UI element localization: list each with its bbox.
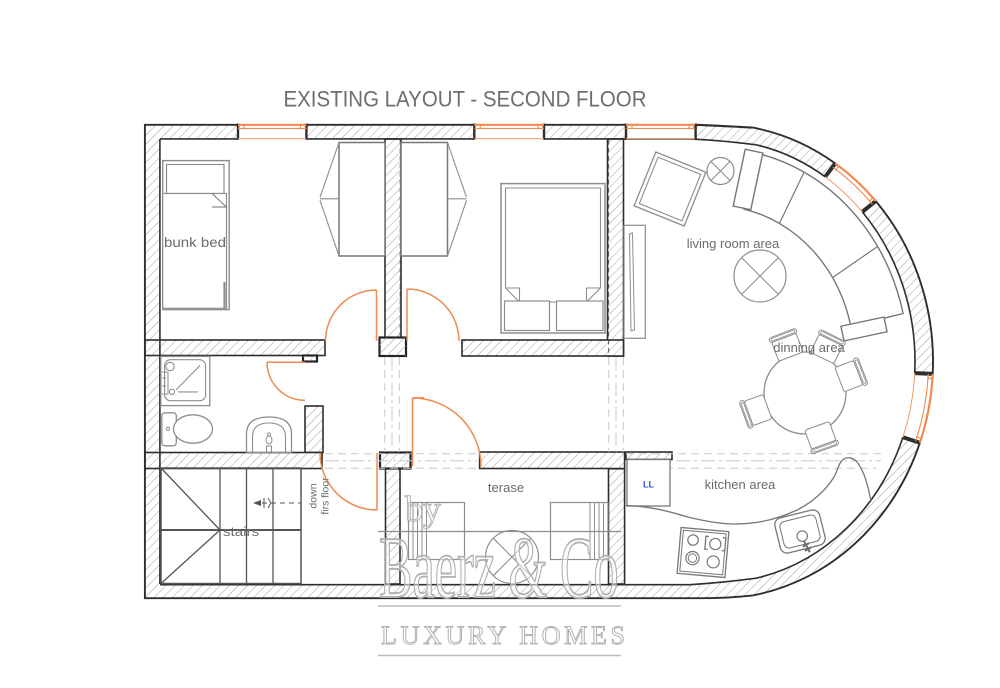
svg-text:EXISTING LAYOUT - SECOND FLOOR: EXISTING LAYOUT - SECOND FLOOR (284, 87, 647, 112)
svg-text:stairs: stairs (223, 524, 260, 539)
svg-text:Baerz & Co: Baerz & Co (379, 520, 619, 617)
svg-text:bunk bed: bunk bed (164, 235, 226, 250)
svg-text:dinning area: dinning area (773, 340, 845, 355)
svg-text:living room area: living room area (687, 236, 780, 251)
svg-text:kitchen area: kitchen area (705, 477, 777, 492)
svg-text:terase: terase (488, 480, 524, 495)
svg-text:LL: LL (643, 480, 654, 490)
svg-text:down: down (308, 483, 320, 508)
svg-text:firs floor: firs floor (320, 477, 332, 515)
